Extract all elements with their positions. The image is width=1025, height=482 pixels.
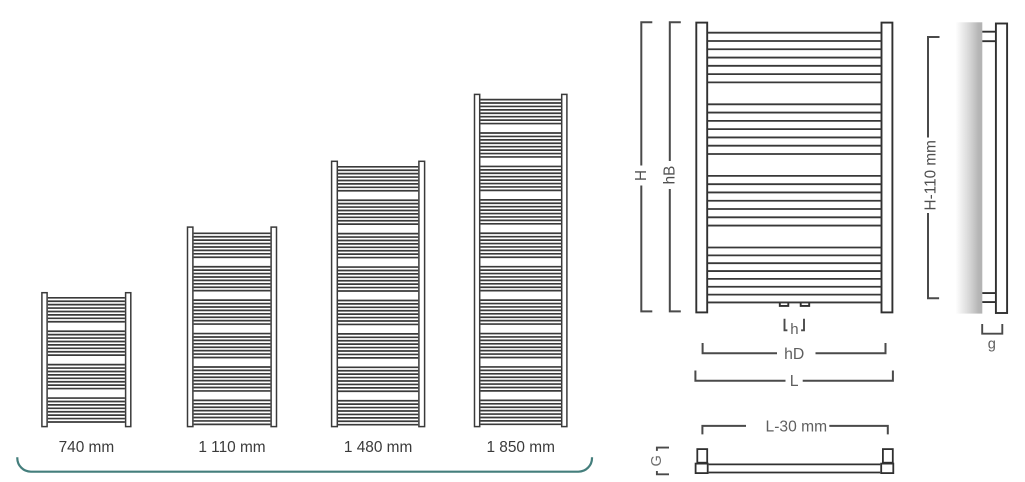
svg-text:hB: hB <box>661 166 678 185</box>
svg-text:L-30 mm: L-30 mm <box>766 418 828 435</box>
svg-text:740 mm: 740 mm <box>59 439 115 456</box>
svg-text:hD: hD <box>784 346 804 363</box>
svg-text:1 850 mm: 1 850 mm <box>486 439 554 456</box>
svg-text:H: H <box>633 170 650 181</box>
svg-text:1 480 mm: 1 480 mm <box>344 439 412 456</box>
svg-text:G: G <box>649 455 665 466</box>
svg-text:h: h <box>790 321 798 338</box>
svg-text:1 110 mm: 1 110 mm <box>198 439 265 456</box>
svg-text:H-110 mm: H-110 mm <box>922 140 939 210</box>
svg-text:g: g <box>988 337 996 353</box>
svg-text:L: L <box>790 373 799 390</box>
